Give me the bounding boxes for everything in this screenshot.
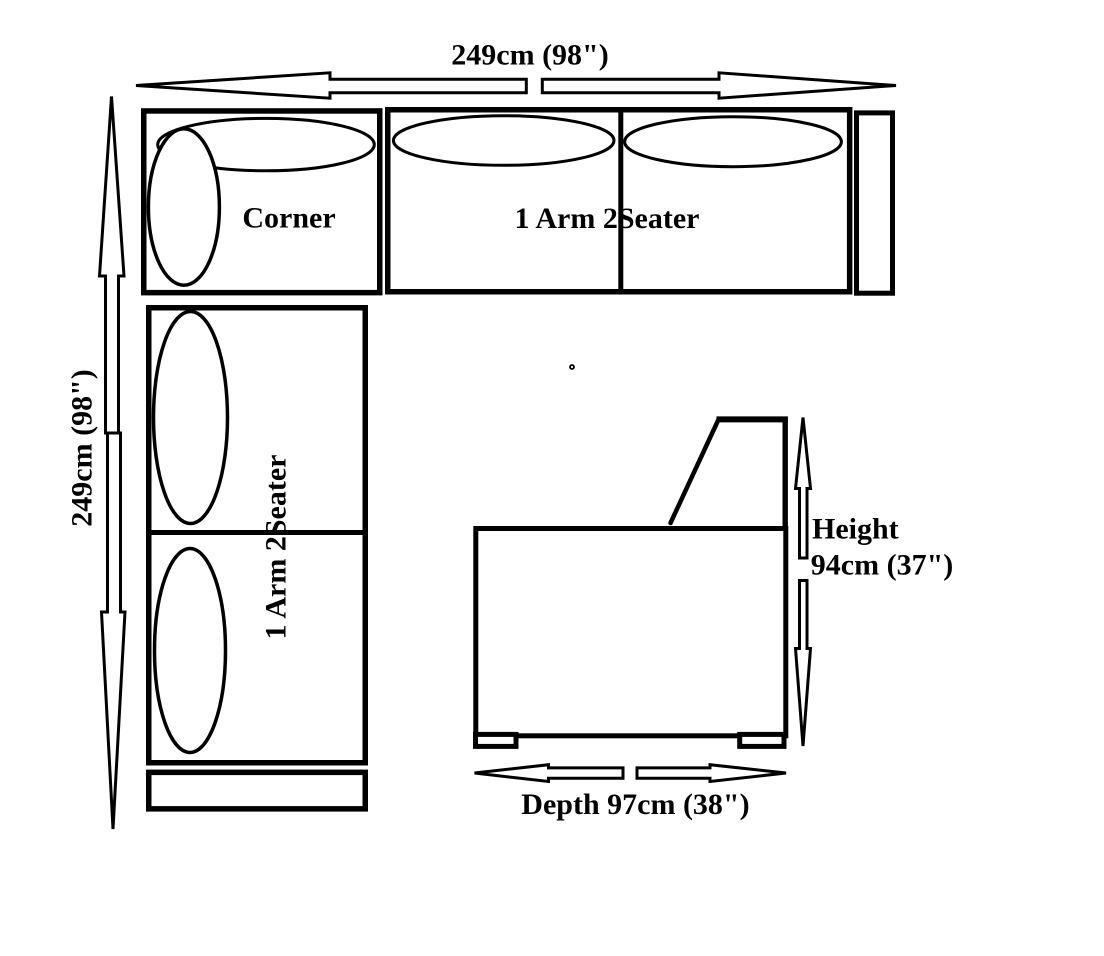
svg-text:94cm (37"): 94cm (37") xyxy=(811,549,953,582)
svg-text:1 Arm 2Seater: 1 Arm 2Seater xyxy=(515,202,700,235)
svg-text:Corner: Corner xyxy=(242,202,335,235)
svg-text:249cm (98"): 249cm (98") xyxy=(451,38,608,71)
svg-text:249cm (98"): 249cm (98") xyxy=(66,369,99,526)
svg-text:1 Arm 2Seater: 1 Arm 2Seater xyxy=(260,455,293,640)
svg-text:Height: Height xyxy=(812,512,899,545)
svg-text:Depth 97cm (38"): Depth 97cm (38") xyxy=(521,788,749,821)
